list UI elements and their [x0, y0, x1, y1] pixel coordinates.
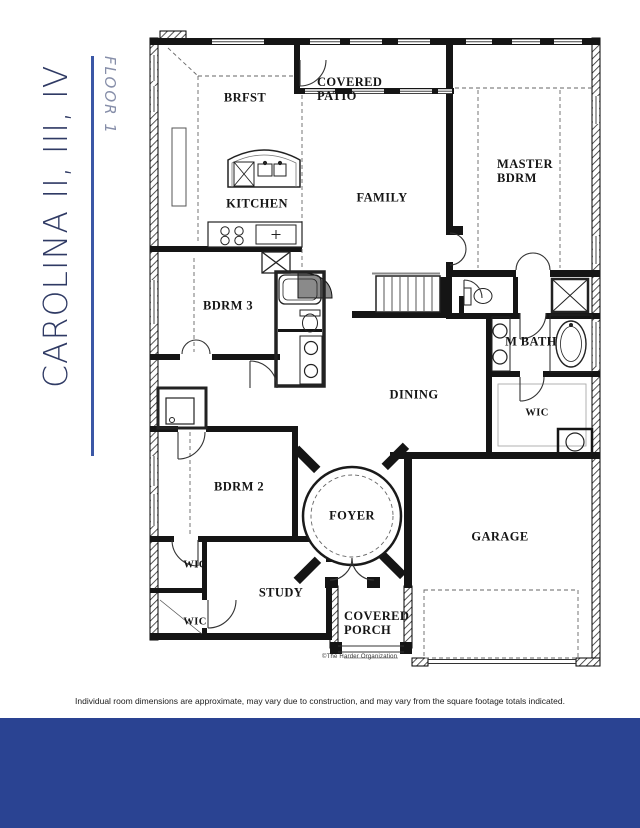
sink-icon: [493, 350, 507, 364]
water-heater-icon: [566, 433, 584, 451]
toilet-room: [464, 288, 492, 305]
room-label-master-bdrm: MASTER BDRM: [497, 158, 563, 185]
kitchen-island: [228, 150, 300, 187]
brand-band: BLOOMFIELD HOMES: [0, 718, 640, 828]
serving-bar: [298, 272, 332, 298]
room-label-family: FAMILY: [356, 191, 407, 206]
room-label-study: STUDY: [259, 586, 303, 601]
room-label-covered-patio: COVERED PATIO: [317, 76, 387, 103]
toilet-icon: [474, 289, 492, 304]
pantry-box: [262, 252, 290, 273]
sink-icon: [305, 365, 318, 378]
dashed-lines: [168, 48, 592, 658]
washer-icon: [166, 398, 194, 424]
room-label-bdrm2: BDRM 2: [214, 480, 264, 495]
room-label-garage: GARAGE: [471, 530, 528, 545]
room-label-brfst: BRFST: [224, 91, 266, 106]
staircase: [372, 274, 440, 313]
room-label-foyer: FOYER: [329, 509, 375, 524]
room-label-bdrm3: BDRM 3: [203, 299, 253, 314]
room-label-covered-porch: COVERED PORCH: [344, 610, 416, 637]
master-wic: [498, 384, 592, 455]
sink-icon: [305, 342, 318, 355]
master-bath: [492, 279, 592, 372]
room-label-dining: DINING: [390, 388, 439, 403]
copyright-note: ©The Harder Organization: [322, 654, 397, 660]
room-label-m-bath: M BATH: [505, 335, 557, 350]
room-label-wic-1: WIC: [183, 560, 206, 571]
floorplan: BRFST COVERED PATIO MASTER BDRM KITCHEN …: [0, 0, 640, 690]
flyer: CAROLINA II, III, IV FLOOR 1: [0, 0, 640, 828]
room-label-kitchen: KITCHEN: [226, 197, 288, 212]
utility-closet: [158, 388, 206, 428]
brfst-cabinet: [172, 128, 186, 206]
room-label-wic-master: WIC: [525, 408, 548, 419]
room-label-wic-2: WIC: [183, 617, 206, 628]
kitchen-range: [208, 222, 302, 247]
disclaimer-text: Individual room dimensions are approxima…: [0, 696, 640, 706]
